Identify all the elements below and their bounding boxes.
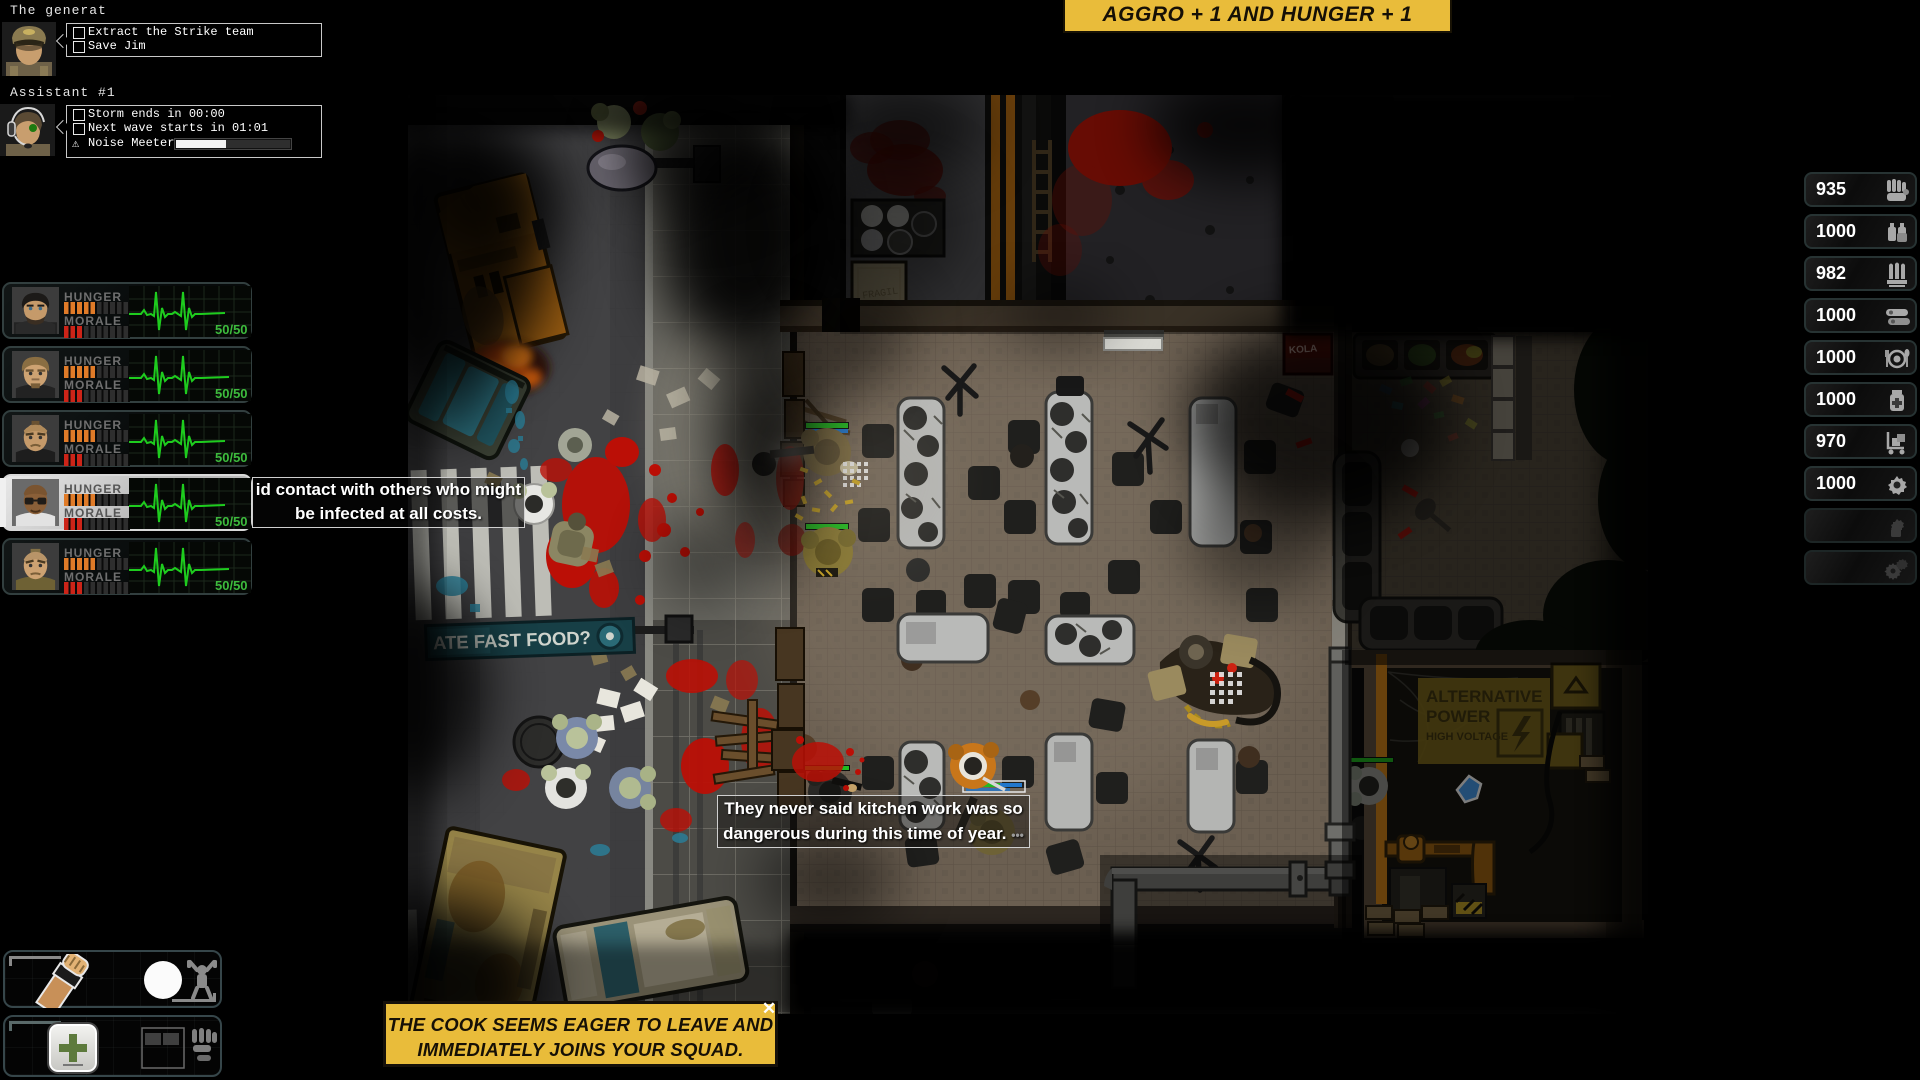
svg-text:50/50: 50/50	[215, 578, 248, 593]
svg-text:50/50: 50/50	[215, 386, 248, 401]
svg-text:50/50: 50/50	[215, 514, 248, 529]
svg-text:50/50: 50/50	[215, 450, 248, 465]
svg-text:50/50: 50/50	[215, 322, 248, 337]
